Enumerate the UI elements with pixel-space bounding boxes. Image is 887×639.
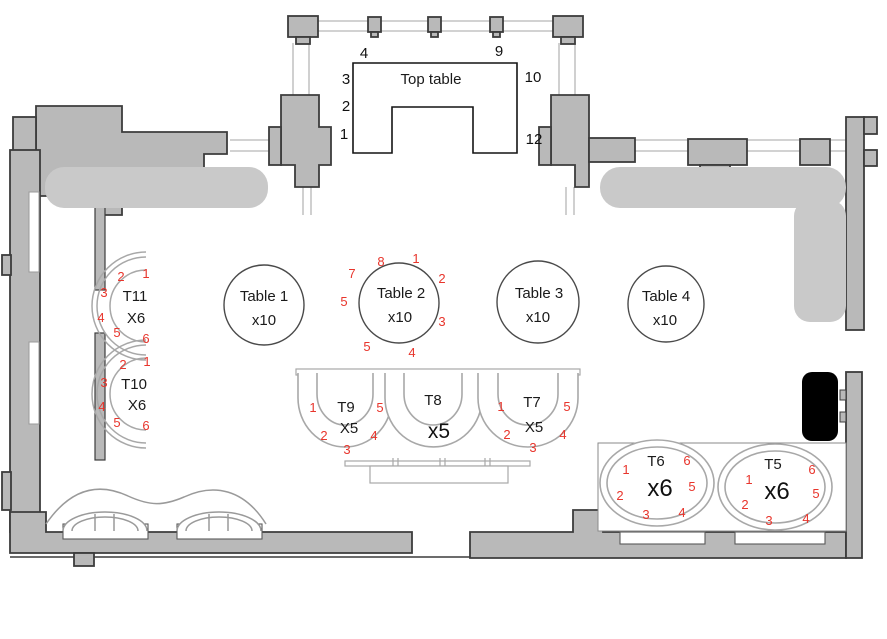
t9-seat-3: 3 bbox=[343, 442, 350, 457]
t7-seat-4: 4 bbox=[559, 427, 566, 442]
t11-cap: X6 bbox=[127, 310, 145, 327]
t5-seat-2: 2 bbox=[741, 497, 748, 512]
t10-seat-4: 4 bbox=[98, 399, 105, 414]
table-1-cap: x10 bbox=[252, 312, 276, 329]
table-1-label: Table 1 bbox=[240, 288, 288, 305]
lounge-left bbox=[45, 167, 268, 208]
wall-right-notch-2 bbox=[840, 412, 846, 422]
table-3-cap: x10 bbox=[526, 309, 550, 326]
t6-seat-2: 2 bbox=[616, 488, 623, 503]
table-3-label: Table 3 bbox=[515, 285, 563, 302]
t6-cap: x6 bbox=[647, 475, 672, 502]
round-tables bbox=[224, 261, 704, 345]
wall-right-tab-1 bbox=[864, 117, 877, 134]
wall-left-bump-2 bbox=[2, 472, 11, 510]
t11-seat-5: 5 bbox=[113, 325, 120, 340]
t6-seat-4: 4 bbox=[678, 505, 685, 520]
t6-label: T6 bbox=[647, 453, 665, 470]
wall-bay-pier-right bbox=[551, 95, 589, 187]
wall-right-notch-1 bbox=[840, 390, 846, 400]
window-slot-2 bbox=[29, 342, 39, 424]
t2-seat-top-right: 1 bbox=[412, 251, 419, 266]
table-2-circle bbox=[359, 263, 439, 343]
top-table-seat-12: 12 bbox=[526, 131, 543, 148]
wall-mullion-1 bbox=[368, 17, 381, 32]
top-table-seat-1: 1 bbox=[340, 126, 348, 143]
table-4-cap: x10 bbox=[653, 312, 677, 329]
t5-seat-1: 1 bbox=[745, 472, 752, 487]
t2-seat-bottom: 4 bbox=[408, 345, 415, 360]
t2-seat-right: 2 bbox=[438, 271, 445, 286]
top-table-label: Top table bbox=[401, 71, 462, 88]
bay-window-1-outer bbox=[63, 512, 147, 531]
u-tables-base-bar bbox=[345, 461, 530, 466]
t7-seat-5: 5 bbox=[563, 399, 570, 414]
wall-mid-pier bbox=[688, 139, 747, 165]
t10-seat-2: 2 bbox=[119, 357, 126, 372]
bottom-left-bay-windows bbox=[46, 489, 266, 531]
window-slot-1 bbox=[29, 192, 39, 272]
t10-seat-5: 5 bbox=[113, 415, 120, 430]
table-1-circle bbox=[224, 265, 304, 345]
top-table-seat-4: 4 bbox=[360, 45, 368, 62]
t10-seat-1: 1 bbox=[143, 354, 150, 369]
t5-cap: x6 bbox=[764, 478, 789, 505]
t5-seat-4: 4 bbox=[802, 511, 809, 526]
t10-cap: X6 bbox=[128, 397, 146, 414]
wall-end-pier bbox=[800, 139, 830, 165]
round-table-labels: Table 1 x10 Table 2 x10 Table 3 x10 Tabl… bbox=[240, 285, 690, 329]
wall-bay-corner-right bbox=[553, 16, 583, 37]
t10-seat-3: 3 bbox=[100, 375, 107, 390]
t8-cap: x5 bbox=[428, 420, 450, 443]
wall-bay-pier-right-arm bbox=[589, 138, 635, 162]
t8-label: T8 bbox=[424, 392, 442, 409]
wall-mullion-2 bbox=[428, 17, 441, 32]
wall-mullion-2-foot bbox=[431, 32, 438, 37]
t11-seat-4: 4 bbox=[97, 310, 104, 325]
wall-bay-pier-left bbox=[281, 95, 331, 187]
black-furniture-block bbox=[802, 372, 838, 441]
floor-plan-canvas: Top table 4 9 3 2 1 10 12 Table 1 x10 Ta… bbox=[0, 0, 887, 639]
t6-seat-5: 5 bbox=[688, 479, 695, 494]
bay-window-2-outer bbox=[177, 512, 261, 531]
t11-seat-1: 1 bbox=[142, 266, 149, 281]
t11-seat-2: 2 bbox=[117, 269, 124, 284]
t11-seat-6: 6 bbox=[142, 331, 149, 346]
top-table-seat-9: 9 bbox=[495, 43, 503, 60]
t9-cap: X5 bbox=[340, 420, 358, 437]
wall-mullion-1-foot bbox=[371, 32, 378, 37]
u-tables-base-rect bbox=[370, 466, 508, 483]
t5-seat-3: 3 bbox=[765, 513, 772, 528]
t5-label: T5 bbox=[764, 456, 782, 473]
t5-seat-5: 5 bbox=[812, 486, 819, 501]
wall-bay-corner-right-foot bbox=[561, 37, 575, 44]
window-recess-3 bbox=[620, 532, 705, 544]
top-table-seat-10: 10 bbox=[525, 69, 542, 86]
t9-seat-5: 5 bbox=[376, 400, 383, 415]
top-table-seat-3: 3 bbox=[342, 71, 350, 88]
wall-right-lower-column bbox=[846, 372, 862, 558]
table-2-cap: x10 bbox=[388, 309, 412, 326]
t7-seat-3: 3 bbox=[529, 440, 536, 455]
wall-bay-corner-left bbox=[288, 16, 318, 37]
t6-seat-1: 1 bbox=[622, 462, 629, 477]
t2-seat-left: 5 bbox=[340, 294, 347, 309]
table-3-circle bbox=[497, 261, 579, 343]
t7-cap: X5 bbox=[525, 419, 543, 436]
u-tables-base bbox=[345, 458, 530, 483]
top-table-seat-2: 2 bbox=[342, 98, 350, 115]
t2-seat-upper-left: 7 bbox=[348, 266, 355, 281]
t9-seat-2: 2 bbox=[320, 428, 327, 443]
t9-label: T9 bbox=[337, 399, 355, 416]
wall-left-bump-1 bbox=[2, 255, 11, 275]
t6-seat-3: 3 bbox=[642, 507, 649, 522]
wall-notch-top-left bbox=[13, 117, 36, 154]
lounges bbox=[45, 167, 846, 322]
wall-bay-pier-left-tab bbox=[269, 127, 281, 165]
wall-bay-corner-left-foot bbox=[296, 37, 310, 44]
table-2-label: Table 2 bbox=[377, 285, 425, 302]
t5-seat-6: 6 bbox=[808, 462, 815, 477]
wall-bottom-left-tab bbox=[74, 553, 94, 566]
t10-seat-6: 6 bbox=[142, 418, 149, 433]
wall-mullion-3-foot bbox=[493, 32, 500, 37]
wall-right-upper-column bbox=[846, 117, 864, 330]
t11-label: T11 bbox=[123, 288, 148, 305]
t10-label: T10 bbox=[121, 376, 147, 393]
table-4-label: Table 4 bbox=[642, 288, 690, 305]
t9-seat-1: 1 bbox=[309, 400, 316, 415]
t2-seat-top: 8 bbox=[377, 254, 384, 269]
t7-label: T7 bbox=[523, 394, 541, 411]
floor-plan: Top table 4 9 3 2 1 10 12 Table 1 x10 Ta… bbox=[0, 0, 887, 639]
t9-seat-4: 4 bbox=[370, 428, 377, 443]
wall-mullion-3 bbox=[490, 17, 503, 32]
t2-seat-bottom-left: 5 bbox=[363, 339, 370, 354]
wall-right-tab-2 bbox=[864, 150, 877, 166]
lounge-right-vertical bbox=[794, 200, 846, 322]
t2-seat-lower-right: 3 bbox=[438, 314, 445, 329]
t6-seat-6: 6 bbox=[683, 453, 690, 468]
t11-seat-3: 3 bbox=[100, 285, 107, 300]
wall-left-inner-strip-1 bbox=[95, 197, 105, 290]
window-recess-4 bbox=[735, 532, 825, 544]
t7-seat-2: 2 bbox=[503, 427, 510, 442]
t7-seat-1: 1 bbox=[497, 399, 504, 414]
